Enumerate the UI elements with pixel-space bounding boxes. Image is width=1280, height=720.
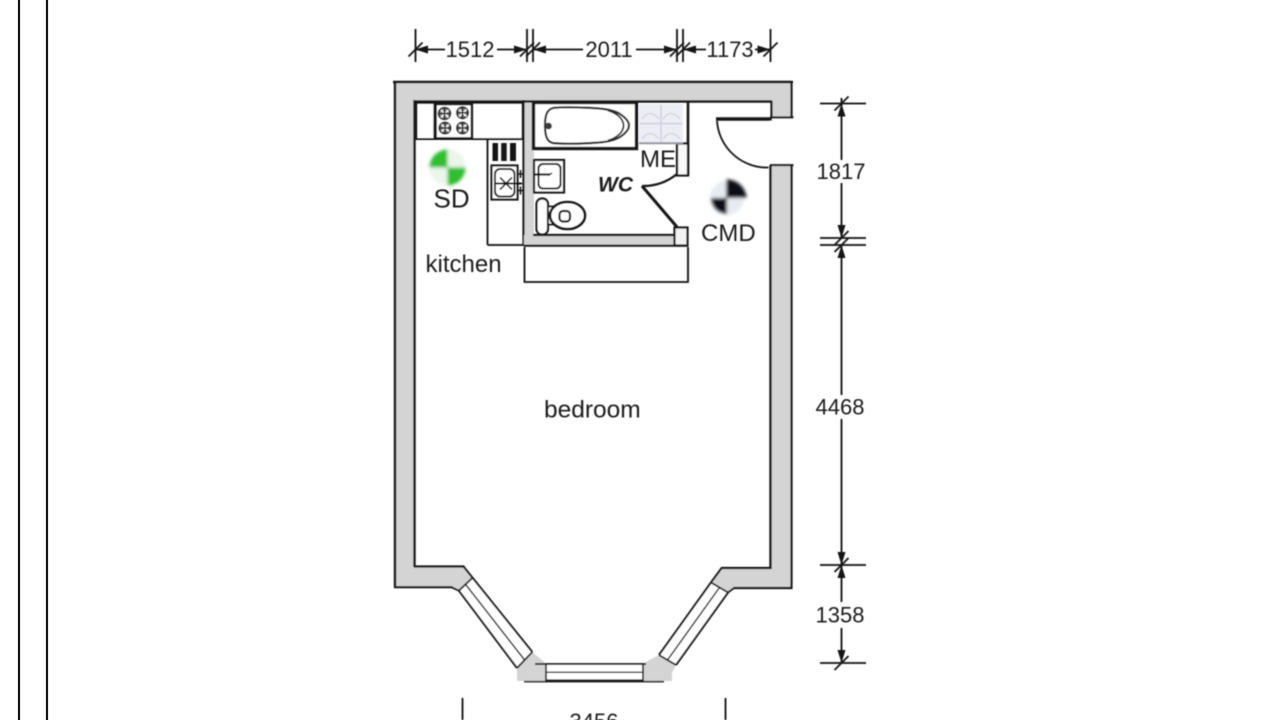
svg-text:4468: 4468: [816, 395, 865, 420]
svg-text:2011: 2011: [585, 37, 632, 62]
svg-text:1817: 1817: [817, 159, 866, 184]
svg-text:WC: WC: [598, 174, 634, 197]
svg-text:SD: SD: [434, 184, 470, 214]
svg-text:1512: 1512: [446, 37, 495, 62]
svg-text:ME: ME: [640, 146, 676, 173]
svg-text:3456: 3456: [570, 709, 619, 720]
svg-text:1358: 1358: [816, 603, 865, 628]
svg-text:bedroom: bedroom: [544, 397, 641, 424]
svg-text:1173: 1173: [706, 37, 753, 62]
svg-text:CMD: CMD: [701, 220, 756, 247]
svg-text:kitchen: kitchen: [426, 251, 502, 278]
